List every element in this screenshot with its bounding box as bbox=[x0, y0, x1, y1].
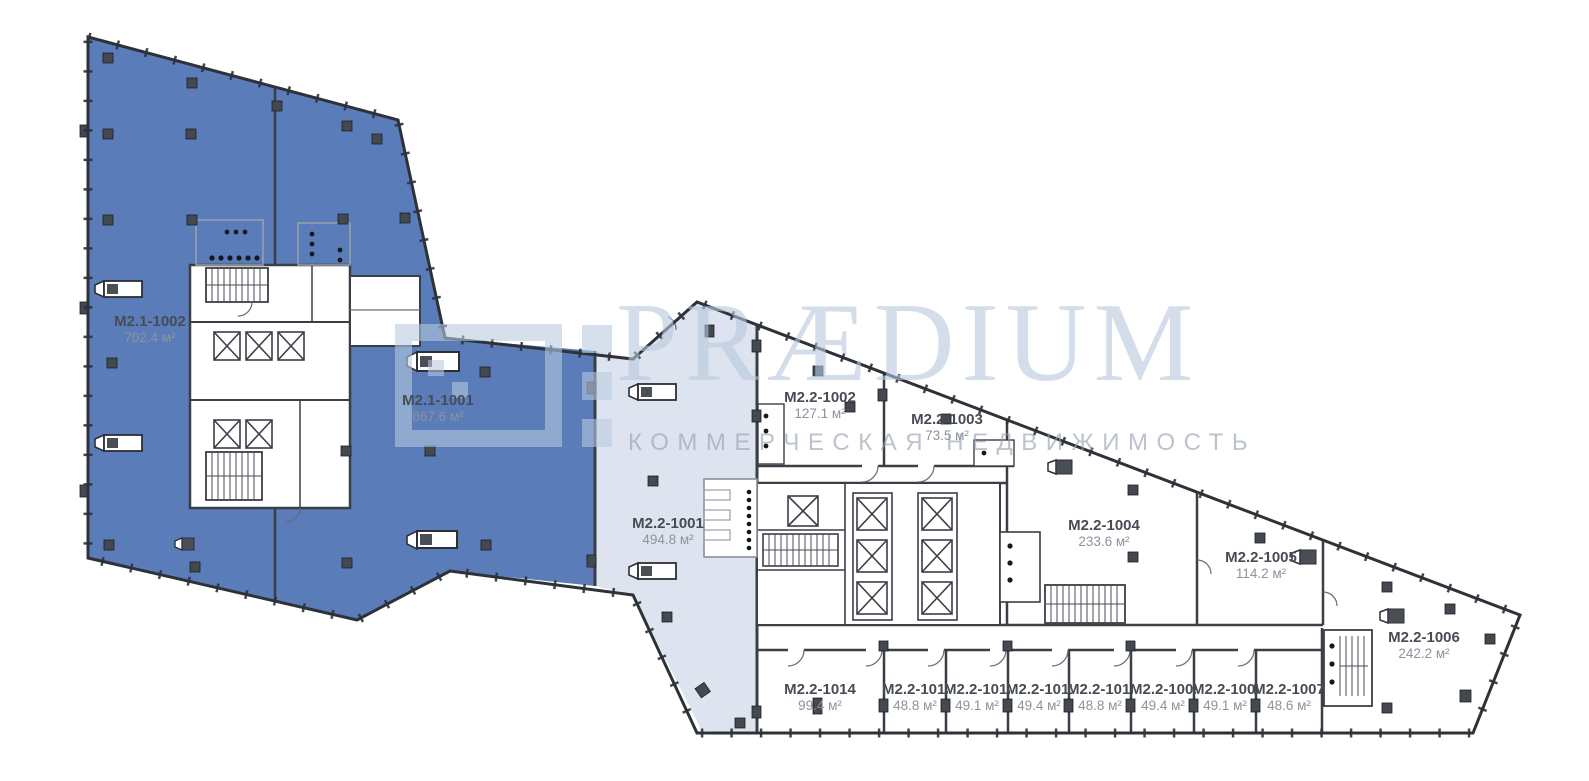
unit-id: M2.2-1007 bbox=[1253, 681, 1325, 698]
unit-label-m2.2-1014[interactable]: M2.2-1014 99.4 м² bbox=[784, 681, 856, 714]
unit-id: M2.2-1009 bbox=[1130, 681, 1196, 698]
unit-id: M2.2-1002 bbox=[784, 389, 856, 406]
unit-id: M2.2-1003 bbox=[911, 411, 983, 428]
unit-area: 242.2 м² bbox=[1388, 646, 1460, 662]
unit-id: M2.2-1001 bbox=[632, 515, 704, 532]
unit-id: M2.2-1014 bbox=[784, 681, 856, 698]
unit-area: 49.4 м² bbox=[1006, 698, 1072, 714]
unit-label-m2.2-1002[interactable]: M2.2-1002 127.1 м² bbox=[784, 389, 856, 422]
unit-id: M2.2-1004 bbox=[1068, 517, 1140, 534]
unit-area: 867.6 м² bbox=[402, 409, 474, 425]
unit-id: M2.2-1011 bbox=[1006, 681, 1072, 698]
unit-label-m2.2-1006[interactable]: M2.2-1006 242.2 м² bbox=[1388, 629, 1460, 662]
unit-id: M2.1-1002 bbox=[114, 313, 186, 330]
unit-area: 233.6 м² bbox=[1068, 534, 1140, 550]
unit-id: M2.2-1006 bbox=[1388, 629, 1460, 646]
unit-id: M2.2-1005 bbox=[1225, 549, 1297, 566]
unit-id: M2.1-1001 bbox=[402, 392, 474, 409]
unit-label-m2.2-1008[interactable]: M2.2-1008 49.1 м² bbox=[1192, 681, 1258, 714]
unit-label-m2.2-1011[interactable]: M2.2-1011 49.4 м² bbox=[1006, 681, 1072, 714]
unit-area: 49.1 м² bbox=[1192, 698, 1258, 714]
unit-id: M2.2-1012 bbox=[944, 681, 1010, 698]
unit-label-m2.1-1002[interactable]: M2.1-1002 702.4 м² bbox=[114, 313, 186, 346]
unit-label-m2.2-1003[interactable]: M2.2-1003 73.5 м² bbox=[911, 411, 983, 444]
entrance-vestibule bbox=[704, 479, 757, 557]
unit-area: 49.4 м² bbox=[1130, 698, 1196, 714]
unit-area: 48.8 м² bbox=[882, 698, 948, 714]
unit-label-m2.2-1007[interactable]: M2.2-1007 48.6 м² bbox=[1253, 681, 1325, 714]
unit-label-m2.2-1004[interactable]: M2.2-1004 233.6 м² bbox=[1068, 517, 1140, 550]
unit-id: M2.2-1013 bbox=[882, 681, 948, 698]
unit-area: 99.4 м² bbox=[784, 698, 856, 714]
unit-area: 49.1 м² bbox=[944, 698, 1010, 714]
unit-area: 48.6 м² bbox=[1253, 698, 1325, 714]
unit-area: 73.5 м² bbox=[911, 428, 983, 444]
unit-area: 48.8 м² bbox=[1067, 698, 1133, 714]
unit-area: 702.4 м² bbox=[114, 330, 186, 346]
unit-label-m2.2-1005[interactable]: M2.2-1005 114.2 м² bbox=[1225, 549, 1297, 582]
unit-label-m2.2-1009[interactable]: M2.2-1009 49.4 м² bbox=[1130, 681, 1196, 714]
unit-area: 114.2 м² bbox=[1225, 566, 1297, 582]
unit-label-m2.2-1001[interactable]: M2.2-1001 494.8 м² bbox=[632, 515, 704, 548]
unit-label-m2.1-1001[interactable]: M2.1-1001 867.6 м² bbox=[402, 392, 474, 425]
unit-area: 494.8 м² bbox=[632, 532, 704, 548]
unit-id: M2.2-1010 bbox=[1067, 681, 1133, 698]
unit-area: 127.1 м² bbox=[784, 406, 856, 422]
floorplan-canvas: PRÆDIUM КОММЕРЧЕСКАЯ НЕДВИЖИМОСТЬ M2.1-1… bbox=[0, 0, 1589, 781]
unit-id: M2.2-1008 bbox=[1192, 681, 1258, 698]
unit-label-m2.2-1013[interactable]: M2.2-1013 48.8 м² bbox=[882, 681, 948, 714]
unit-label-m2.2-1010[interactable]: M2.2-1010 48.8 м² bbox=[1067, 681, 1133, 714]
unit-label-m2.2-1012[interactable]: M2.2-1012 49.1 м² bbox=[944, 681, 1010, 714]
